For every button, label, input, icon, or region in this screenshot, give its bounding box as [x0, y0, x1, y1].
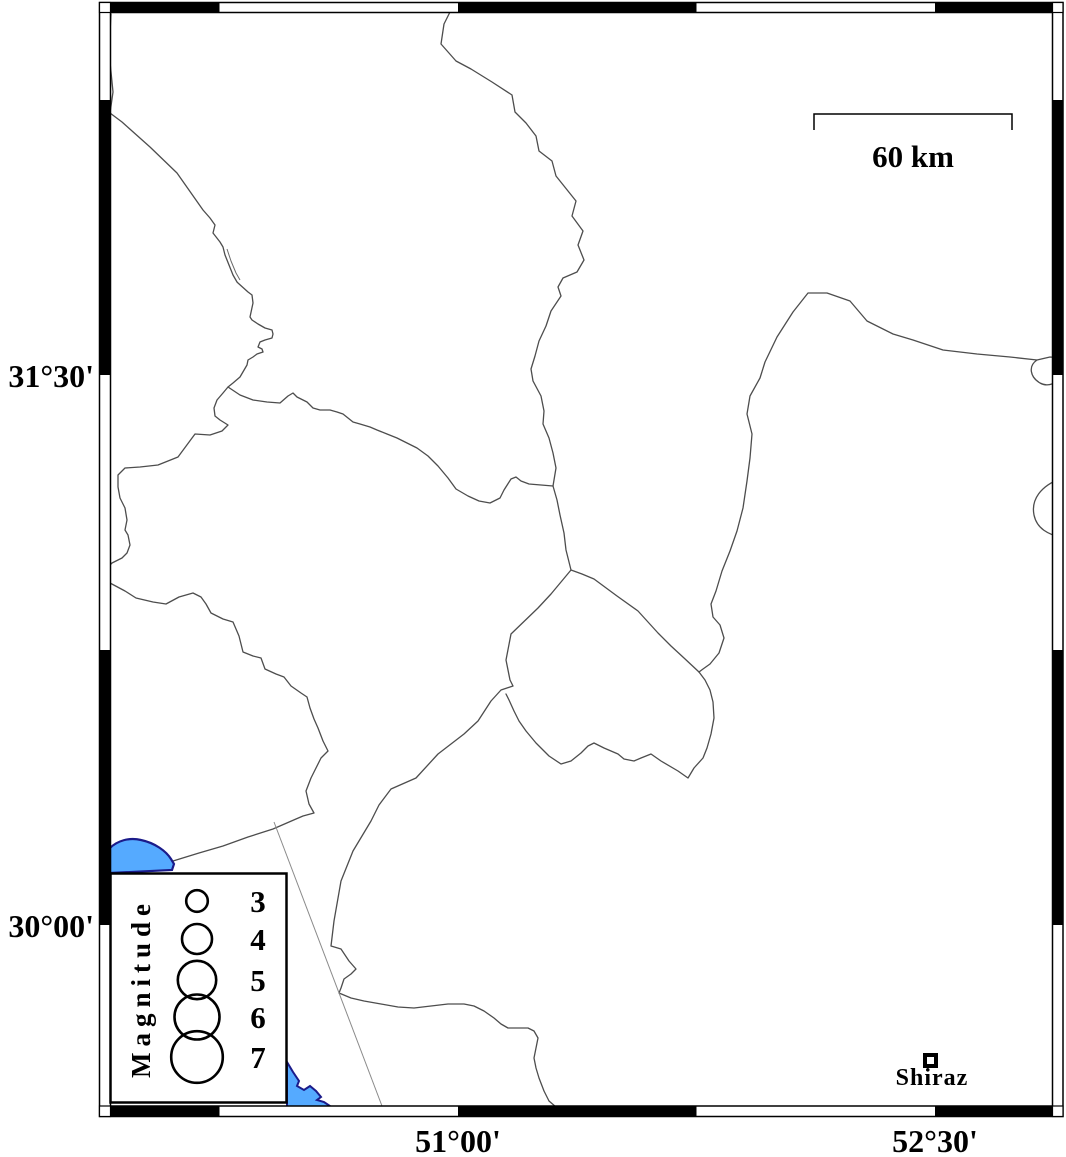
magnitude-label-4: 4	[250, 922, 266, 957]
boundary-east	[699, 293, 1062, 672]
fault-line	[274, 822, 382, 1106]
boundary-southwest	[331, 570, 571, 1107]
graticule-segment	[1053, 100, 1064, 375]
legend-title: Magnitude	[126, 898, 156, 1078]
graticule-segment	[458, 3, 697, 13]
lake-west	[110, 839, 174, 873]
graticule-segment	[100, 650, 111, 925]
city-shiraz: Shiraz	[896, 1055, 969, 1091]
graticule-segment	[111, 3, 220, 13]
boundary-west	[110, 113, 273, 565]
boundary-lower-west	[110, 583, 328, 861]
frame-corner	[100, 1106, 111, 1117]
graticule-segment	[935, 1106, 1053, 1117]
seismicity-map: Shiraz 60 km	[0, 0, 1066, 1157]
lat-label-30-00: 30°00'	[8, 908, 94, 944]
graticule-segment	[458, 1106, 697, 1117]
scale-bar-label: 60 km	[872, 139, 954, 174]
graticule-segment	[100, 100, 111, 375]
lon-label-52-30: 52°30'	[892, 1123, 978, 1157]
lake-south	[287, 1062, 331, 1107]
boundary-central-south	[553, 486, 699, 672]
scale-bar: 60 km	[814, 114, 1012, 174]
map-canvas: Shiraz 60 km	[0, 0, 1066, 1157]
magnitude-label-5: 5	[250, 963, 266, 998]
graticule-segment	[111, 1106, 220, 1117]
lon-label-51-00: 51°00'	[415, 1123, 501, 1157]
boundary-central-west	[228, 387, 553, 503]
boundary-north	[441, 12, 584, 486]
frame-corner	[1053, 1106, 1064, 1117]
magnitude-label-7: 7	[250, 1040, 266, 1075]
lat-label-31-30: 31°30'	[8, 358, 94, 394]
graticule-segment	[935, 3, 1053, 13]
scale-bar-bracket	[814, 114, 1012, 130]
magnitude-label-6: 6	[250, 1000, 266, 1035]
frame-corner	[1053, 3, 1064, 13]
city-label: Shiraz	[896, 1065, 969, 1091]
magnitude-label-3: 3	[250, 884, 266, 919]
frame-corner	[100, 3, 111, 13]
boundary-bay	[506, 672, 714, 778]
graticule-segment	[1053, 650, 1064, 925]
legend-box: Magnitude 3 4 5 6 7	[111, 874, 287, 1103]
